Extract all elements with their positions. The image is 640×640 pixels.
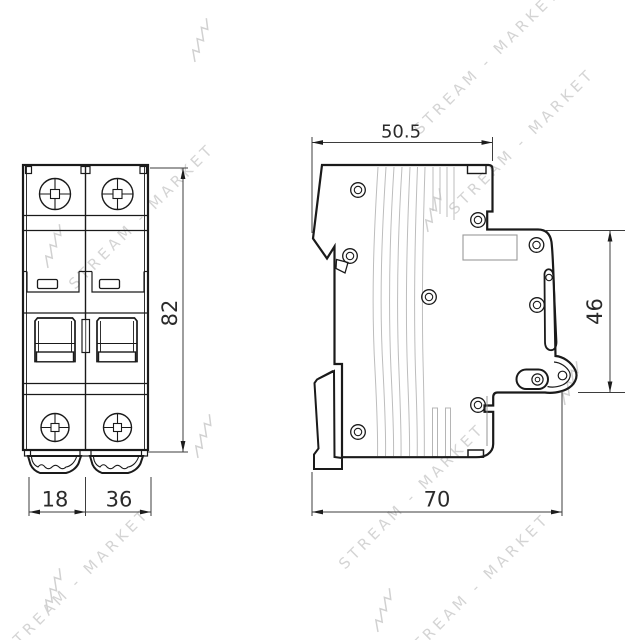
rivet-outer bbox=[529, 238, 544, 253]
rivet-inner bbox=[354, 428, 361, 435]
drawing-canvas: STREAM - MARKET STREAM - MARKET STREAM -… bbox=[0, 0, 640, 640]
handle-tab bbox=[37, 352, 74, 362]
toggle-handle-right bbox=[97, 318, 137, 362]
dimension-label-70: 70 bbox=[424, 488, 451, 512]
squiggle-icon bbox=[549, 361, 593, 405]
squiggle-icon bbox=[182, 414, 226, 458]
claw-outline bbox=[90, 456, 143, 473]
mold-line bbox=[373, 167, 378, 456]
screw-center bbox=[113, 190, 122, 199]
mold-line bbox=[415, 167, 418, 456]
terminal-screw-bottom-left bbox=[41, 414, 69, 442]
arrowhead bbox=[482, 140, 493, 145]
rivet-outer bbox=[351, 183, 366, 198]
lever-pivot-hole bbox=[546, 274, 552, 280]
handle-tie-bar bbox=[82, 320, 90, 353]
toggle-handle-left bbox=[35, 318, 75, 362]
clip-chamfer bbox=[318, 371, 333, 379]
dimension-label-18: 18 bbox=[42, 488, 69, 512]
claw-serration bbox=[94, 457, 139, 469]
dimension-label-46: 46 bbox=[583, 298, 607, 325]
terminal-claw-left bbox=[28, 456, 81, 473]
dimension-label-82: 82 bbox=[158, 300, 182, 327]
mold-line bbox=[381, 167, 386, 456]
rivet bbox=[471, 398, 486, 413]
rivet bbox=[530, 298, 545, 313]
rivet-inner bbox=[425, 293, 432, 300]
rivet-inner bbox=[354, 186, 361, 193]
rivet-outer bbox=[351, 425, 366, 440]
dimension-side-front-height: 46 bbox=[545, 231, 625, 393]
rivet-inner bbox=[346, 252, 353, 259]
rivet-inner bbox=[533, 241, 540, 248]
indicator-window bbox=[38, 280, 58, 289]
arrowhead bbox=[551, 510, 562, 515]
claw-serration bbox=[32, 457, 77, 469]
rivet-inner bbox=[533, 301, 540, 308]
arrowhead bbox=[312, 510, 323, 515]
rivet-outer bbox=[530, 298, 545, 313]
rivet bbox=[351, 183, 366, 198]
arrowhead bbox=[312, 140, 323, 145]
screw-center bbox=[114, 424, 122, 432]
mold-line bbox=[390, 167, 394, 456]
recess-pole-2 bbox=[92, 272, 148, 293]
dimension-front-widths: 18 36 bbox=[29, 477, 151, 516]
release-slot bbox=[517, 370, 549, 390]
slot-circle-inner bbox=[535, 377, 540, 382]
dimension-side-top-depth: 50.5 bbox=[312, 122, 493, 234]
arrowhead bbox=[75, 510, 86, 515]
side-view bbox=[313, 165, 576, 469]
slot-circle bbox=[532, 374, 543, 385]
top-tab bbox=[140, 167, 147, 174]
rivet bbox=[422, 290, 437, 305]
clip-outline bbox=[314, 371, 342, 469]
rivet-inner bbox=[474, 401, 481, 408]
mold-lines bbox=[373, 167, 454, 457]
rivet-outer bbox=[343, 249, 358, 264]
claw-outline bbox=[28, 456, 81, 473]
arrowhead bbox=[608, 231, 613, 242]
terminal-claw-right bbox=[90, 456, 143, 473]
rivet bbox=[471, 213, 486, 228]
watermark-text: STREAM - MARKET bbox=[335, 419, 488, 572]
mold-line bbox=[398, 167, 402, 456]
claw-hole bbox=[558, 371, 567, 380]
rivet-outer bbox=[471, 213, 486, 228]
watermark-text: STREAM - MARKET bbox=[400, 509, 553, 640]
terminal-screw-top-left bbox=[40, 179, 71, 210]
rivet bbox=[529, 238, 544, 253]
mold-line bbox=[422, 167, 425, 456]
side-body-outline bbox=[313, 165, 576, 457]
terminal-screw-bottom-right bbox=[104, 414, 132, 442]
rivet-outer bbox=[422, 290, 437, 305]
dimension-label-36: 36 bbox=[106, 488, 133, 512]
vent-slot bbox=[433, 408, 438, 457]
front-view bbox=[23, 165, 148, 473]
rivet-outer bbox=[471, 398, 486, 413]
watermark-text: STREAM - MARKET bbox=[0, 504, 153, 640]
watermark-text: STREAM - MARKET bbox=[65, 139, 218, 292]
label-area bbox=[463, 235, 517, 260]
technical-drawing: STREAM - MARKET STREAM - MARKET STREAM -… bbox=[0, 0, 640, 640]
screw-center bbox=[51, 424, 59, 432]
indicator-window bbox=[100, 280, 120, 289]
terminal-screw-top-right bbox=[102, 179, 133, 210]
arrowhead bbox=[181, 441, 186, 452]
dimension-label-50-5: 50.5 bbox=[381, 122, 421, 143]
rivet bbox=[351, 425, 366, 440]
handle-tab bbox=[99, 352, 136, 362]
arrowhead bbox=[29, 510, 40, 515]
rivet bbox=[343, 249, 358, 264]
mold-line bbox=[406, 167, 410, 456]
squiggle-icon bbox=[179, 18, 223, 62]
rivet-inner bbox=[474, 216, 481, 223]
screw-center bbox=[51, 190, 60, 199]
arrowhead bbox=[608, 382, 613, 393]
squiggle-icon bbox=[362, 588, 406, 632]
